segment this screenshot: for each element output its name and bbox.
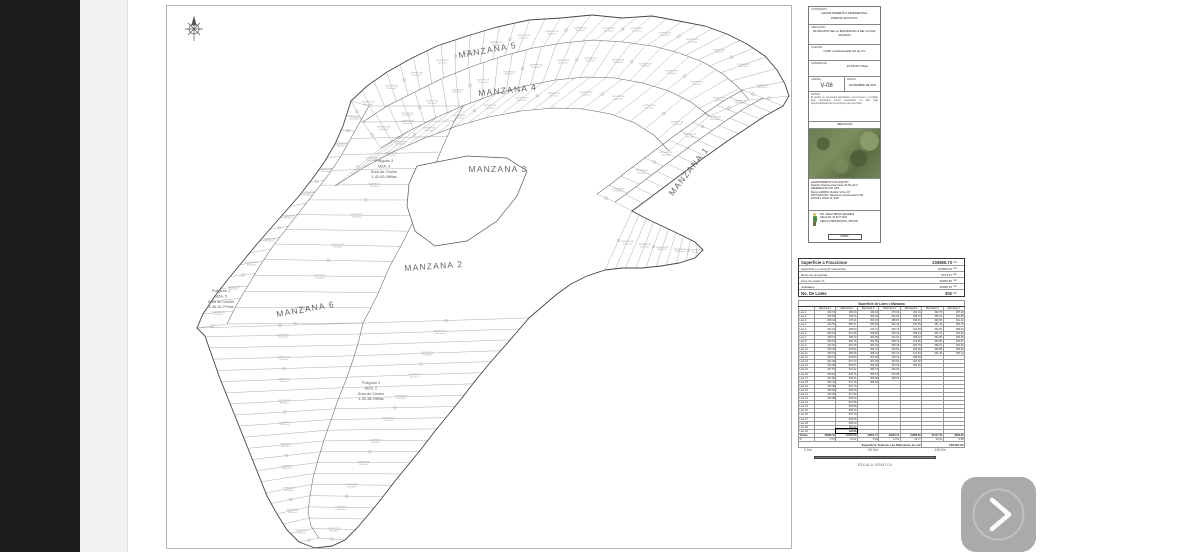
- summary-cell: 25095.63: [913, 285, 953, 289]
- lot-area-value: 300.00m2: [692, 84, 702, 86]
- summary-cell: No. De Lotes: [799, 290, 913, 296]
- lamina-number: V-08: [811, 83, 842, 91]
- lot-area-value: 300.00m2: [349, 119, 359, 121]
- lot-area-value: 300.00m2: [660, 35, 670, 37]
- compass-icon: [185, 17, 203, 41]
- lot-area-value: 300.00m2: [531, 67, 541, 69]
- title-block-superficie: SUPERFICIE: 23-08-55.73Has: [809, 61, 880, 77]
- lot-area-value: 300.00m2: [614, 98, 624, 100]
- lot-area-value: 300.00m2: [230, 289, 240, 291]
- cliente-value: CORI La Manzanilla SA de CV: [811, 50, 878, 54]
- fecha-value: NOVIEMBRE DE 2023: [847, 84, 878, 87]
- summary-cell: 230855.73: [913, 260, 953, 265]
- lot-area-value: 300.00m2: [586, 60, 596, 62]
- lot-area-value: 300.00m2: [265, 241, 275, 243]
- lot-area-value: 300.00m2: [297, 532, 307, 534]
- aerial-photo: [809, 129, 880, 179]
- lot-area-value: 300.00m2: [438, 63, 448, 65]
- lot-area-value: 300.00m2: [686, 137, 696, 139]
- title-block-lamina-fecha: LAMINA: V-08 FECHA: NOVIEMBRE DE 2023: [809, 77, 880, 92]
- polygon-note-line: Área de Cesión: [208, 300, 234, 304]
- lot-area-value: 300.00m2: [675, 251, 685, 253]
- title-block-contenido: CONTENIDO: LEVANTAMIENTO PERIMETRAL PRED…: [809, 7, 880, 25]
- lot-area-value: 300.00m2: [386, 155, 396, 157]
- superficie-value: 23-08-55.73Has: [835, 61, 880, 76]
- survey-map: SUPERFICIE300.00m2SUPERFICIE300.00m2SUPE…: [167, 6, 791, 548]
- signature-box: FIRMA: [828, 234, 862, 240]
- lot-area-value: 300.00m2: [688, 41, 698, 43]
- lot-area-value: 300.00m2: [710, 119, 720, 121]
- chevron-right-icon: [961, 477, 1036, 552]
- polygon-note-line: 1-31-38.04Has: [358, 397, 383, 401]
- polygon-note-line: 4-46-16.27Has: [208, 305, 233, 309]
- lot-area-value: 300.00m2: [758, 87, 768, 89]
- lot-area-value: 300.00m2: [284, 218, 294, 220]
- lot-area-value: 300.00m2: [453, 92, 463, 94]
- lot-area-value: 300.00m2: [303, 195, 313, 197]
- summary-row: Área de cesión %28056.85m2: [799, 277, 964, 283]
- polygon-note-line: MZA. 2: [365, 386, 377, 390]
- lot-surface-table: Superficie de Lotes x ManzanaManzana 1Ma…: [798, 300, 965, 448]
- lot-area-value: 300.00m2: [279, 359, 289, 361]
- lot-area-value: 300.00m2: [359, 464, 369, 466]
- lot-area-value: 300.00m2: [455, 118, 465, 120]
- lot-area-value: 300.00m2: [379, 129, 389, 131]
- lot-area-value: 300.00m2: [714, 52, 724, 54]
- lot-area-value: 300.00m2: [403, 123, 413, 125]
- lot-area-value: 300.00m2: [582, 94, 592, 96]
- lot-area-value: 300.00m2: [640, 246, 650, 248]
- summary-row: No. De Lotes302Pts: [799, 289, 964, 296]
- polygon-note-line: Polígono 1: [212, 289, 230, 293]
- polygon-note-line: Polígono 2: [362, 381, 380, 385]
- summary-cell: vialidades: [799, 284, 913, 289]
- lot-area-value: 300.00m2: [280, 402, 290, 404]
- lot-area-value: 300.00m2: [735, 103, 745, 105]
- summary-cell: Superficie en venta (8 manzanas): [799, 266, 913, 271]
- summary-row: vialidades25095.63m2: [799, 283, 964, 289]
- scale-tick-0: 0.0m: [804, 448, 812, 452]
- lot-area-value: 300.00m2: [412, 75, 422, 77]
- lot-area-value: 300.00m2: [315, 277, 325, 279]
- surveyor-credentials: ING. DIEGO BRAVO NEGRETECELULAR: 33 3477…: [820, 213, 858, 223]
- manzana-label: MANZANA 5: [458, 40, 518, 60]
- lot-area-value: 300.00m2: [662, 154, 672, 156]
- lot-area-value: 300.00m2: [485, 108, 495, 110]
- manzana-label: MANZANA 2: [404, 259, 464, 273]
- summary-row: Superficie en venta (8 manzanas)166655.0…: [799, 265, 964, 271]
- lot-area-value: 300.00m2: [427, 103, 437, 105]
- title-block-cliente: CLIENTE: CORI La Manzanilla SA de CV: [809, 45, 880, 61]
- lot-area-value: 300.00m2: [410, 376, 420, 378]
- lot-area-value: 300.00m2: [333, 247, 343, 249]
- credential-line: CEDULA PROFESIONAL: 5567234: [820, 220, 858, 223]
- lot-area-value: 300.00m2: [549, 95, 559, 97]
- plan-sheet: SUPERFICIE300.00m2SUPERFICIE300.00m2SUPE…: [166, 5, 792, 549]
- lot-area-value: 300.00m2: [547, 34, 557, 36]
- summary-cell: m2: [953, 267, 964, 270]
- lot-area-value: 300.00m2: [403, 115, 413, 117]
- lot-area-value: 300.00m2: [637, 172, 647, 174]
- viewer-side-strip: [80, 0, 128, 552]
- lot-area-value: 300.00m2: [278, 337, 288, 339]
- lot-area-value: 300.00m2: [614, 191, 624, 193]
- scale-tick-50: 50.0m: [868, 448, 877, 452]
- lot-area-value: 300.00m2: [478, 82, 488, 84]
- surveyor-person-icon: [811, 213, 818, 226]
- title-block-mapa-header: UBICACION: [809, 122, 880, 129]
- lot-area-value: 300.00m2: [280, 424, 290, 426]
- signature-row: ING. DIEGO BRAVO NEGRETECELULAR: 33 3477…: [809, 211, 880, 233]
- title-block: CONTENIDO: LEVANTAMIENTO PERIMETRAL PRED…: [808, 6, 881, 243]
- lot-area-value: 300.00m2: [425, 130, 435, 132]
- lot-area-value: 300.00m2: [282, 468, 292, 470]
- lot-area-value: 300.00m2: [387, 88, 397, 90]
- lot-area-value: 300.00m2: [517, 100, 527, 102]
- lot-area-value: 300.00m2: [641, 66, 651, 68]
- lamina-label: LAMINA:: [811, 78, 821, 81]
- lot-area-value: 300.00m2: [321, 171, 331, 173]
- summary-cell: 302: [913, 291, 953, 296]
- lot-area-value: 300.00m2: [672, 124, 682, 126]
- lot-table: Superficie de Lotes x ManzanaManzana 1Ma…: [798, 300, 965, 448]
- fecha-cell: FECHA: NOVIEMBRE DE 2023: [844, 77, 880, 91]
- title-block-ubicacion: UBICACION: MUNICIPIO DE LA MANZANILLA DE…: [809, 25, 880, 45]
- summary-cell: Área de cesión %: [799, 278, 913, 283]
- lot-area-value: 300.00m2: [280, 381, 290, 383]
- lot-area-value: 300.00m2: [645, 107, 655, 109]
- lot-area-value: 300.00m2: [370, 186, 380, 188]
- notas-text: El predio se encuentra delimitado y los …: [811, 96, 878, 105]
- polygon-note-line: Área de Cesión: [358, 392, 384, 396]
- lot-area-value: 300.00m2: [739, 66, 749, 68]
- lot-area-value: 300.00m2: [371, 442, 381, 444]
- summary-row: Resto de propiedad6074.37m2: [799, 271, 964, 277]
- manzana-label: MANZANA 1: [667, 145, 711, 198]
- ubicacion-value: MUNICIPIO DE LA MANZANILLA DE LA PAZ, JA…: [811, 30, 878, 38]
- summary-cell: Resto de propiedad: [799, 272, 913, 277]
- equipment-line: WGS-84, ZONA 13, SUR: [811, 197, 878, 200]
- lamina-cell: LAMINA: V-08: [809, 77, 844, 91]
- scale-bar-line: [814, 456, 936, 459]
- lot-area-value: 300.00m2: [423, 355, 433, 357]
- table-footer: Superficie Total de Las Manzanas en m216…: [799, 442, 965, 448]
- lot-area-value: 300.00m2: [395, 144, 405, 146]
- title-block-notas: NOTAS: El predio se encuentra delimitado…: [809, 92, 880, 122]
- lot-area-value: 300.00m2: [559, 62, 569, 64]
- polygon-note-line: 1-41-63.08Has: [371, 175, 396, 179]
- summary-cell: 28056.85: [913, 279, 953, 283]
- summary-cell: m2: [953, 273, 964, 276]
- summary-cell: Pts: [953, 292, 964, 295]
- lot-area-value: 300.00m2: [214, 314, 224, 316]
- lot-area-value: 300.00m2: [604, 30, 614, 32]
- lot-area-value: 300.00m2: [363, 104, 373, 106]
- summary-cell: m2: [953, 261, 964, 264]
- next-image-button[interactable]: [961, 477, 1036, 552]
- lot-area-value: 300.00m2: [435, 333, 445, 335]
- lot-area-value: 300.00m2: [337, 509, 347, 511]
- summary-row: Superficie a Fraccionar230855.73m2: [799, 259, 964, 265]
- equipment-notes: LEVANTAMIENTO CON EQUIPO:Estación Total …: [809, 179, 880, 211]
- summary-cell: 6074.37: [913, 273, 953, 277]
- lot-area-value: 300.00m2: [623, 243, 633, 245]
- scale-bar: 0.0m 50.0m 100.0m ESCALA GRAFICA: [800, 448, 950, 478]
- lot-area-value: 300.00m2: [632, 30, 642, 32]
- surface-summary-table: Superficie a Fraccionar230855.73m2Superf…: [798, 258, 965, 297]
- lot-area-value: 300.00m2: [288, 512, 298, 514]
- lot-area-value: 300.00m2: [667, 73, 677, 75]
- lot-area-value: 300.00m2: [505, 74, 515, 76]
- scale-tick-100: 100.0m: [935, 448, 946, 452]
- lot-area-value: 300.00m2: [329, 531, 339, 533]
- fecha-label: FECHA:: [847, 78, 857, 81]
- superficie-label: SUPERFICIE:: [809, 61, 835, 76]
- lot-area-value: 300.00m2: [658, 249, 668, 251]
- lot-area-value: 300.00m2: [337, 145, 347, 147]
- polygon-note-line: MZA. 3: [378, 164, 390, 168]
- polygon-note-line: Polígono 3: [375, 159, 393, 163]
- summary-cell: m2: [953, 285, 964, 288]
- footer-value: 166440.02: [922, 442, 965, 448]
- lot-area-value: 300.00m2: [284, 490, 294, 492]
- lot-area-value: 300.00m2: [281, 446, 291, 448]
- lot-area-value: 300.00m2: [715, 100, 725, 102]
- polygon-note-line: MZA. 5: [215, 294, 227, 298]
- signature-section: ING. DIEGO BRAVO NEGRETECELULAR: 33 3477…: [809, 211, 880, 242]
- summary-cell: m2: [953, 279, 964, 282]
- lot-area-value: 300.00m2: [613, 62, 623, 64]
- summary-cell: 166655.02: [913, 267, 953, 271]
- lot-area-value: 300.00m2: [352, 217, 362, 219]
- manzana-label: MANZANA 6: [276, 299, 336, 319]
- lot-area-value: 300.00m2: [397, 398, 407, 400]
- lot-area-value: 300.00m2: [247, 264, 257, 266]
- polygon-note-line: Área de Cesión: [371, 170, 397, 174]
- summary-cell: Superficie a Fraccionar: [799, 259, 913, 265]
- lot-area-value: 300.00m2: [575, 30, 585, 32]
- footer-label: Superficie Total de Las Manzanas en m2: [799, 442, 922, 448]
- scale-caption: ESCALA GRAFICA: [800, 463, 950, 467]
- lot-area-value: 300.00m2: [519, 37, 529, 39]
- viewer-letterbox-left: [0, 0, 80, 552]
- manzana-label: MANZANA 3: [469, 164, 528, 174]
- lot-area-value: 300.00m2: [384, 420, 394, 422]
- contenido-line2: PREDIO RUSTICO: [811, 17, 878, 21]
- lot-area-value: 300.00m2: [692, 252, 702, 254]
- scale-ticks: 0.0m 50.0m 100.0m: [800, 448, 950, 452]
- manzana-label: MANZANA 4: [478, 82, 538, 98]
- lot-area-value: 300.00m2: [347, 486, 357, 488]
